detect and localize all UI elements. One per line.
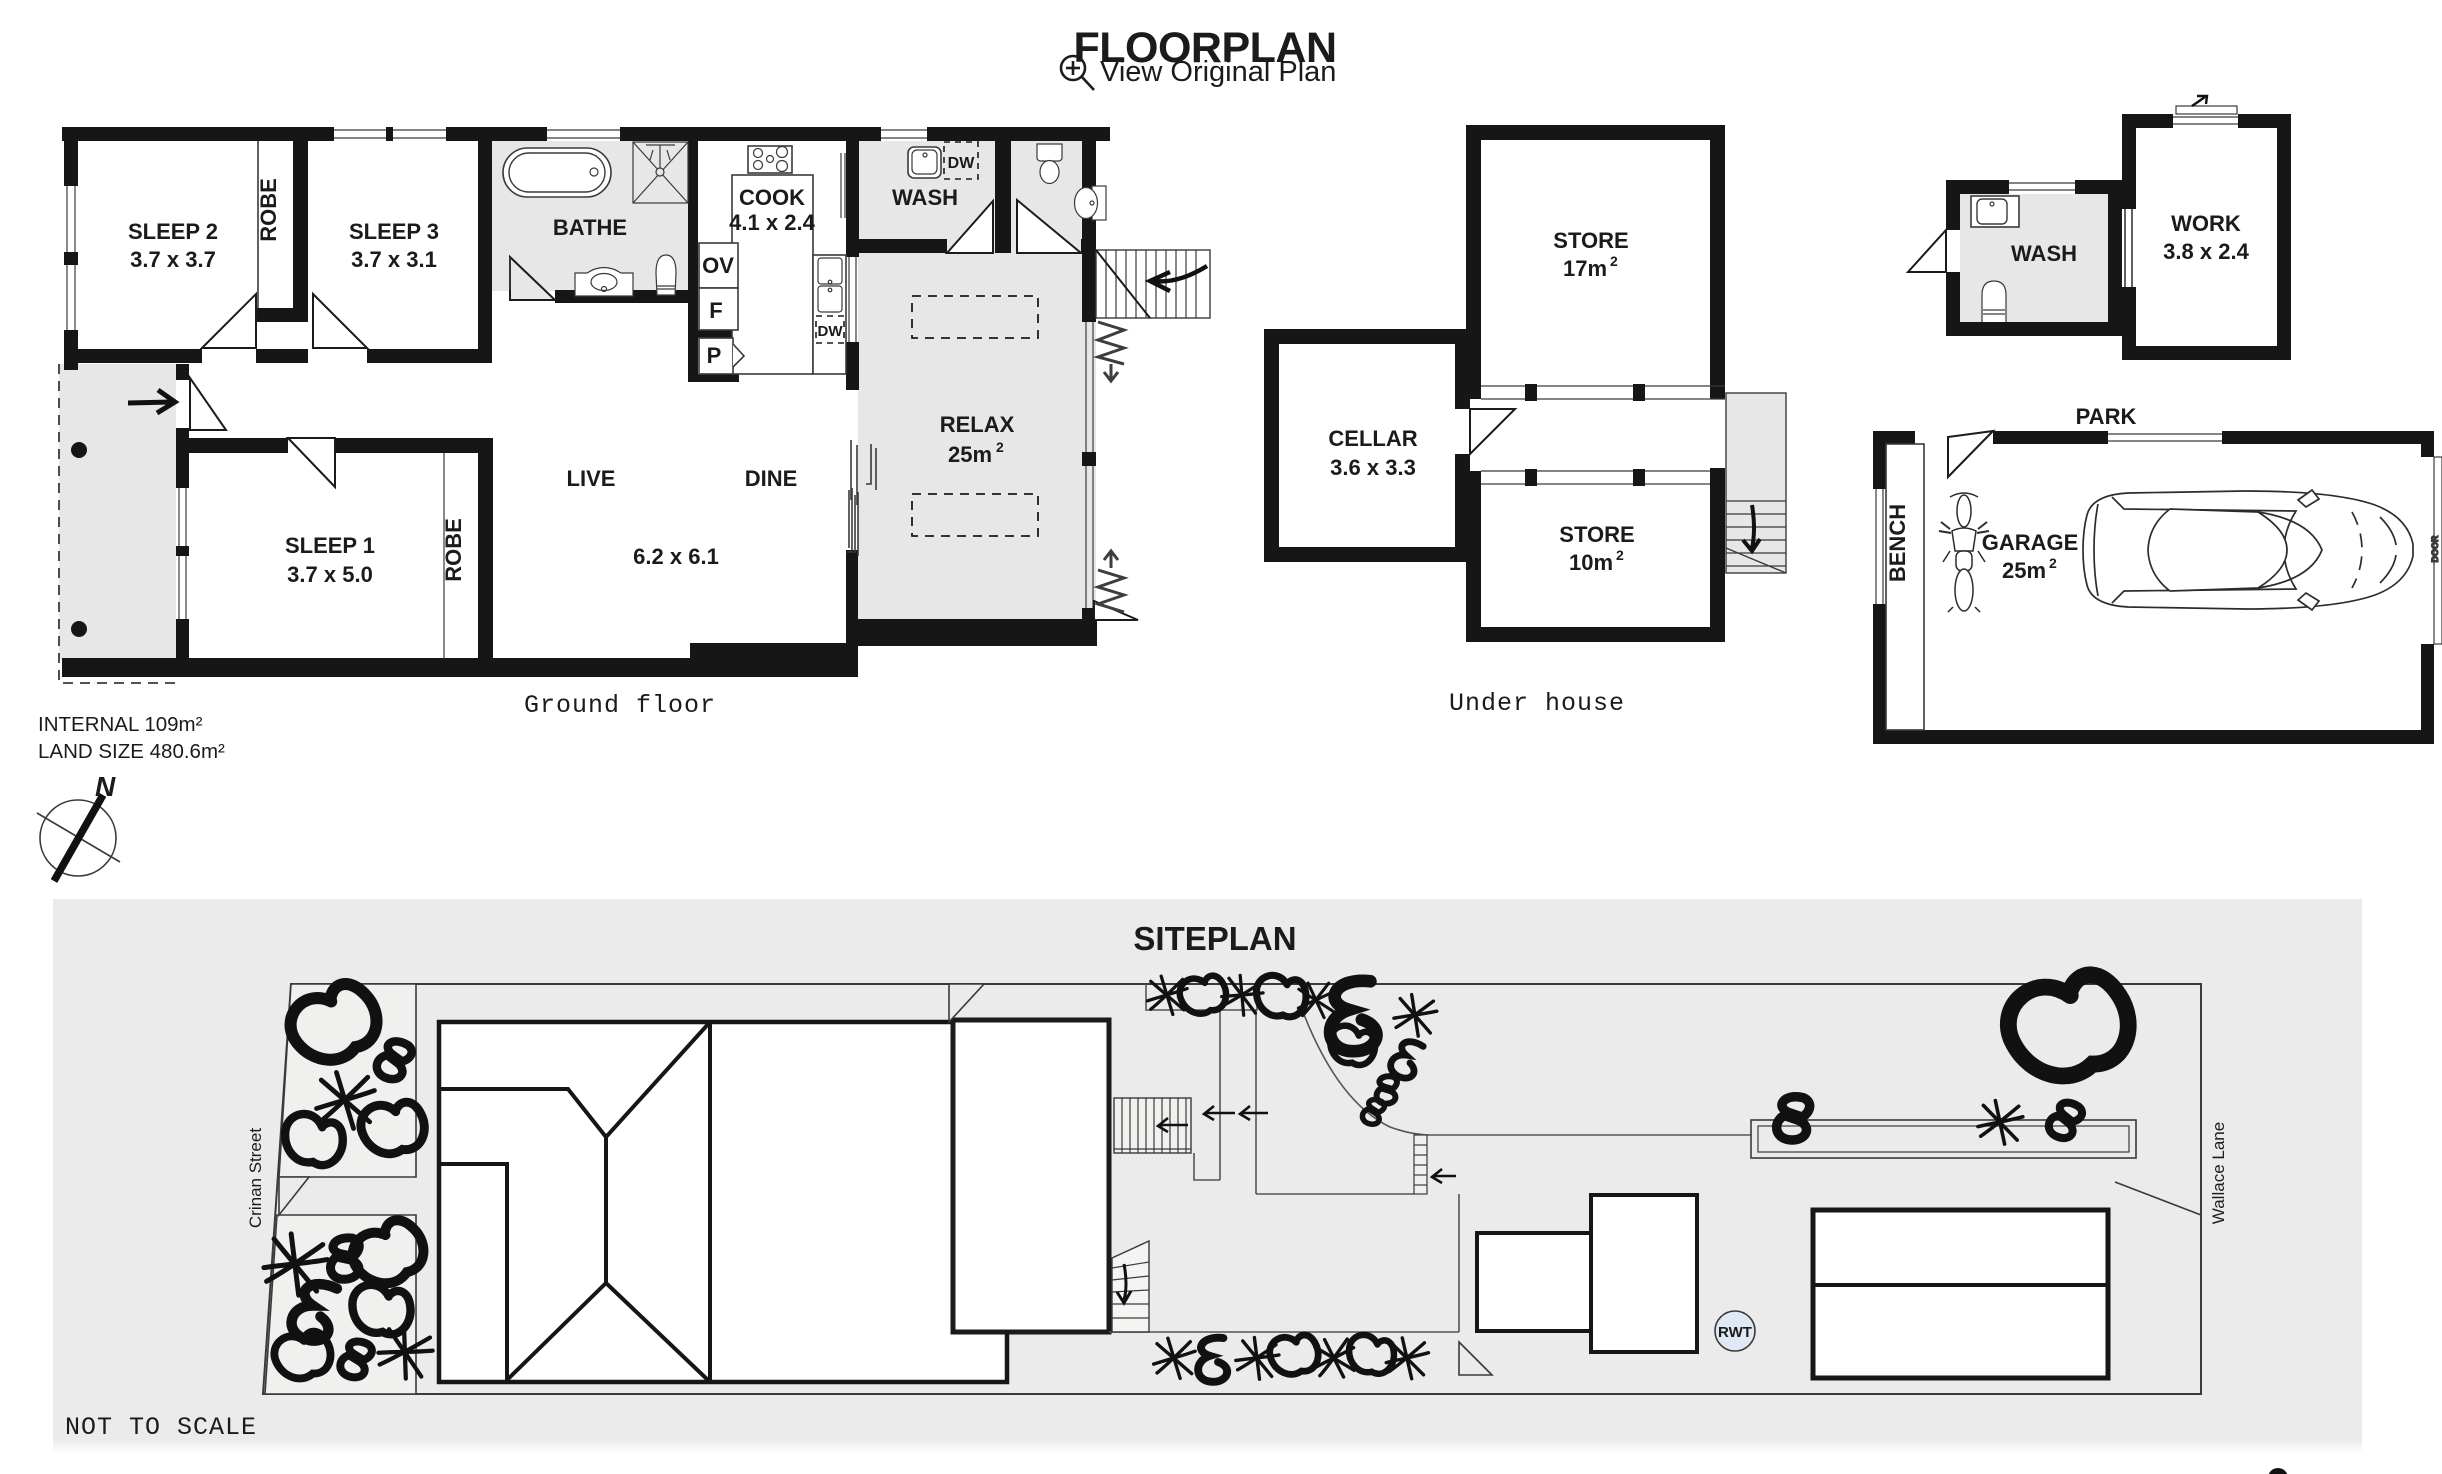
svg-text:2: 2: [996, 439, 1004, 455]
svg-text:3.6 x 3.3: 3.6 x 3.3: [1330, 455, 1416, 480]
svg-text:OV: OV: [702, 253, 734, 278]
svg-text:DINE: DINE: [745, 466, 798, 491]
svg-text:NOT TO SCALE: NOT TO SCALE: [65, 1413, 257, 1442]
svg-text:6.2 x 6.1: 6.2 x 6.1: [633, 544, 719, 569]
svg-text:RWT: RWT: [1718, 1324, 1752, 1341]
svg-text:Under house: Under house: [1449, 689, 1625, 718]
svg-text:4.1 x 2.4: 4.1 x 2.4: [729, 210, 815, 235]
svg-text:2: 2: [1616, 547, 1624, 563]
svg-text:25m: 25m: [2002, 558, 2046, 583]
svg-text:INTERNAL 109m²: INTERNAL 109m²: [38, 713, 203, 736]
svg-text:SITEPLAN: SITEPLAN: [1133, 920, 1296, 957]
svg-text:3.7 x 3.1: 3.7 x 3.1: [351, 247, 437, 272]
svg-text:ROBE: ROBE: [441, 518, 466, 582]
svg-text:10m: 10m: [1569, 550, 1613, 575]
svg-text:GARAGE: GARAGE: [1982, 530, 2079, 555]
svg-text:COOK: COOK: [739, 185, 805, 210]
svg-text:STORE: STORE: [1553, 228, 1628, 253]
svg-text:STORE: STORE: [1559, 522, 1634, 547]
svg-text:WASH: WASH: [2011, 241, 2077, 266]
svg-text:PARK: PARK: [2076, 404, 2137, 429]
svg-text:RELAX: RELAX: [940, 412, 1015, 437]
svg-text:WORK: WORK: [2171, 211, 2241, 236]
svg-text:BATHE: BATHE: [553, 215, 627, 240]
svg-text:25m: 25m: [948, 442, 992, 467]
svg-text:P: P: [707, 343, 722, 368]
svg-text:2: 2: [1610, 253, 1618, 269]
svg-text:17m: 17m: [1563, 256, 1607, 281]
svg-text:N: N: [95, 771, 116, 802]
svg-text:3.7 x 5.0: 3.7 x 5.0: [287, 562, 373, 587]
svg-text:LIVE: LIVE: [567, 466, 616, 491]
svg-text:SLEEP 1: SLEEP 1: [285, 533, 375, 558]
svg-text:DOOR: DOOR: [2430, 535, 2440, 563]
svg-text:SLEEP 3: SLEEP 3: [349, 219, 439, 244]
svg-text:2: 2: [2049, 555, 2057, 571]
svg-text:ROBE: ROBE: [256, 178, 281, 242]
svg-text:Wallace Lane: Wallace Lane: [2209, 1122, 2228, 1224]
svg-text:3.7 x 3.7: 3.7 x 3.7: [130, 247, 216, 272]
svg-text:WASH: WASH: [892, 185, 958, 210]
svg-text:3.8 x 2.4: 3.8 x 2.4: [2163, 239, 2249, 264]
svg-text:BENCH: BENCH: [1885, 504, 1910, 582]
svg-text:CELLAR: CELLAR: [1328, 426, 1417, 451]
svg-text:F: F: [709, 298, 722, 323]
svg-text:SLEEP 2: SLEEP 2: [128, 219, 218, 244]
svg-text:DW: DW: [948, 155, 976, 172]
svg-text:Ground floor: Ground floor: [524, 691, 716, 720]
svg-text:LAND SIZE 480.6m²: LAND SIZE 480.6m²: [38, 740, 225, 763]
svg-text:View Original Plan: View Original Plan: [1100, 56, 1336, 88]
svg-text:DW: DW: [818, 323, 844, 340]
svg-text:Crinan Street: Crinan Street: [246, 1128, 265, 1228]
